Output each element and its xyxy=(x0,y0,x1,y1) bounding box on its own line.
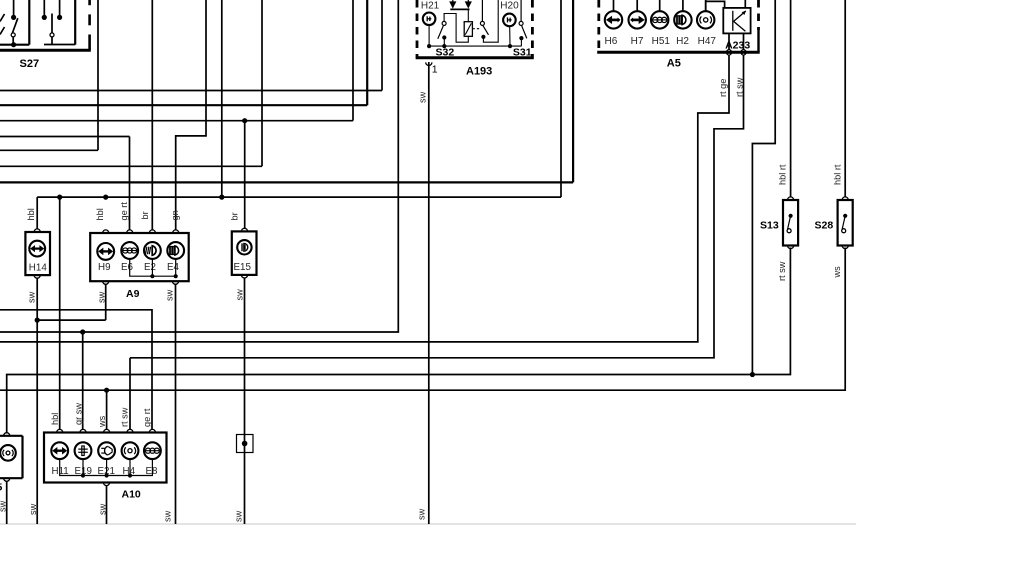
svg-text:sw: sw xyxy=(98,503,108,515)
svg-text:E15: E15 xyxy=(234,262,252,273)
svg-text:E2: E2 xyxy=(144,262,156,273)
svg-text:A5: A5 xyxy=(667,57,681,69)
svg-text:H14: H14 xyxy=(29,262,48,273)
svg-text:rt sw: rt sw xyxy=(120,407,130,427)
svg-text:hbl: hbl xyxy=(95,208,105,220)
svg-text:H21: H21 xyxy=(421,1,440,12)
svg-text:br: br xyxy=(230,212,240,220)
svg-text:H6: H6 xyxy=(605,36,618,47)
svg-text:hbl rt: hbl rt xyxy=(833,164,843,185)
svg-text:sw: sw xyxy=(418,91,428,103)
svg-text:ws: ws xyxy=(832,266,842,279)
svg-text:H51: H51 xyxy=(652,36,671,47)
svg-text:sw: sw xyxy=(234,510,244,522)
svg-text:H9: H9 xyxy=(98,262,111,273)
svg-text:rt sw: rt sw xyxy=(735,77,745,97)
svg-text:rt sw: rt sw xyxy=(777,261,787,281)
svg-text:S28: S28 xyxy=(815,220,834,232)
svg-text:ge rt: ge rt xyxy=(119,202,129,221)
svg-text:sw: sw xyxy=(0,500,8,512)
svg-text:sw: sw xyxy=(28,503,38,515)
svg-text:rt ge: rt ge xyxy=(718,79,728,97)
svg-text:sw: sw xyxy=(163,510,173,522)
svg-text:A10: A10 xyxy=(122,489,141,501)
svg-text:sw: sw xyxy=(97,291,107,303)
svg-text:ws: ws xyxy=(97,415,107,428)
svg-text:sw: sw xyxy=(235,289,245,301)
svg-text:S13: S13 xyxy=(760,220,779,232)
svg-text:H20: H20 xyxy=(500,1,519,12)
svg-text:hbl: hbl xyxy=(26,208,36,220)
svg-text:sw: sw xyxy=(27,291,37,303)
svg-text:H2: H2 xyxy=(676,36,689,47)
svg-text:sw: sw xyxy=(165,289,175,301)
svg-text:A193: A193 xyxy=(466,66,492,78)
svg-text:5: 5 xyxy=(0,482,3,494)
svg-text:H7: H7 xyxy=(631,36,644,47)
svg-text:S31: S31 xyxy=(513,46,532,58)
svg-text:H47: H47 xyxy=(698,36,717,47)
svg-text:1: 1 xyxy=(432,64,438,76)
svg-text:hbl: hbl xyxy=(50,413,60,425)
svg-text:E6: E6 xyxy=(121,262,134,273)
svg-text:A9: A9 xyxy=(126,288,140,300)
svg-text:gn: gn xyxy=(170,210,180,220)
svg-text:sw: sw xyxy=(417,508,427,520)
svg-text:gr sw: gr sw xyxy=(74,403,84,425)
svg-text:ge rt: ge rt xyxy=(142,408,152,427)
svg-text:E4: E4 xyxy=(167,262,180,273)
svg-text:S32: S32 xyxy=(436,46,455,58)
svg-text:br: br xyxy=(140,211,150,219)
svg-text:S27: S27 xyxy=(20,58,40,70)
svg-text:hbl rt: hbl rt xyxy=(778,164,788,185)
